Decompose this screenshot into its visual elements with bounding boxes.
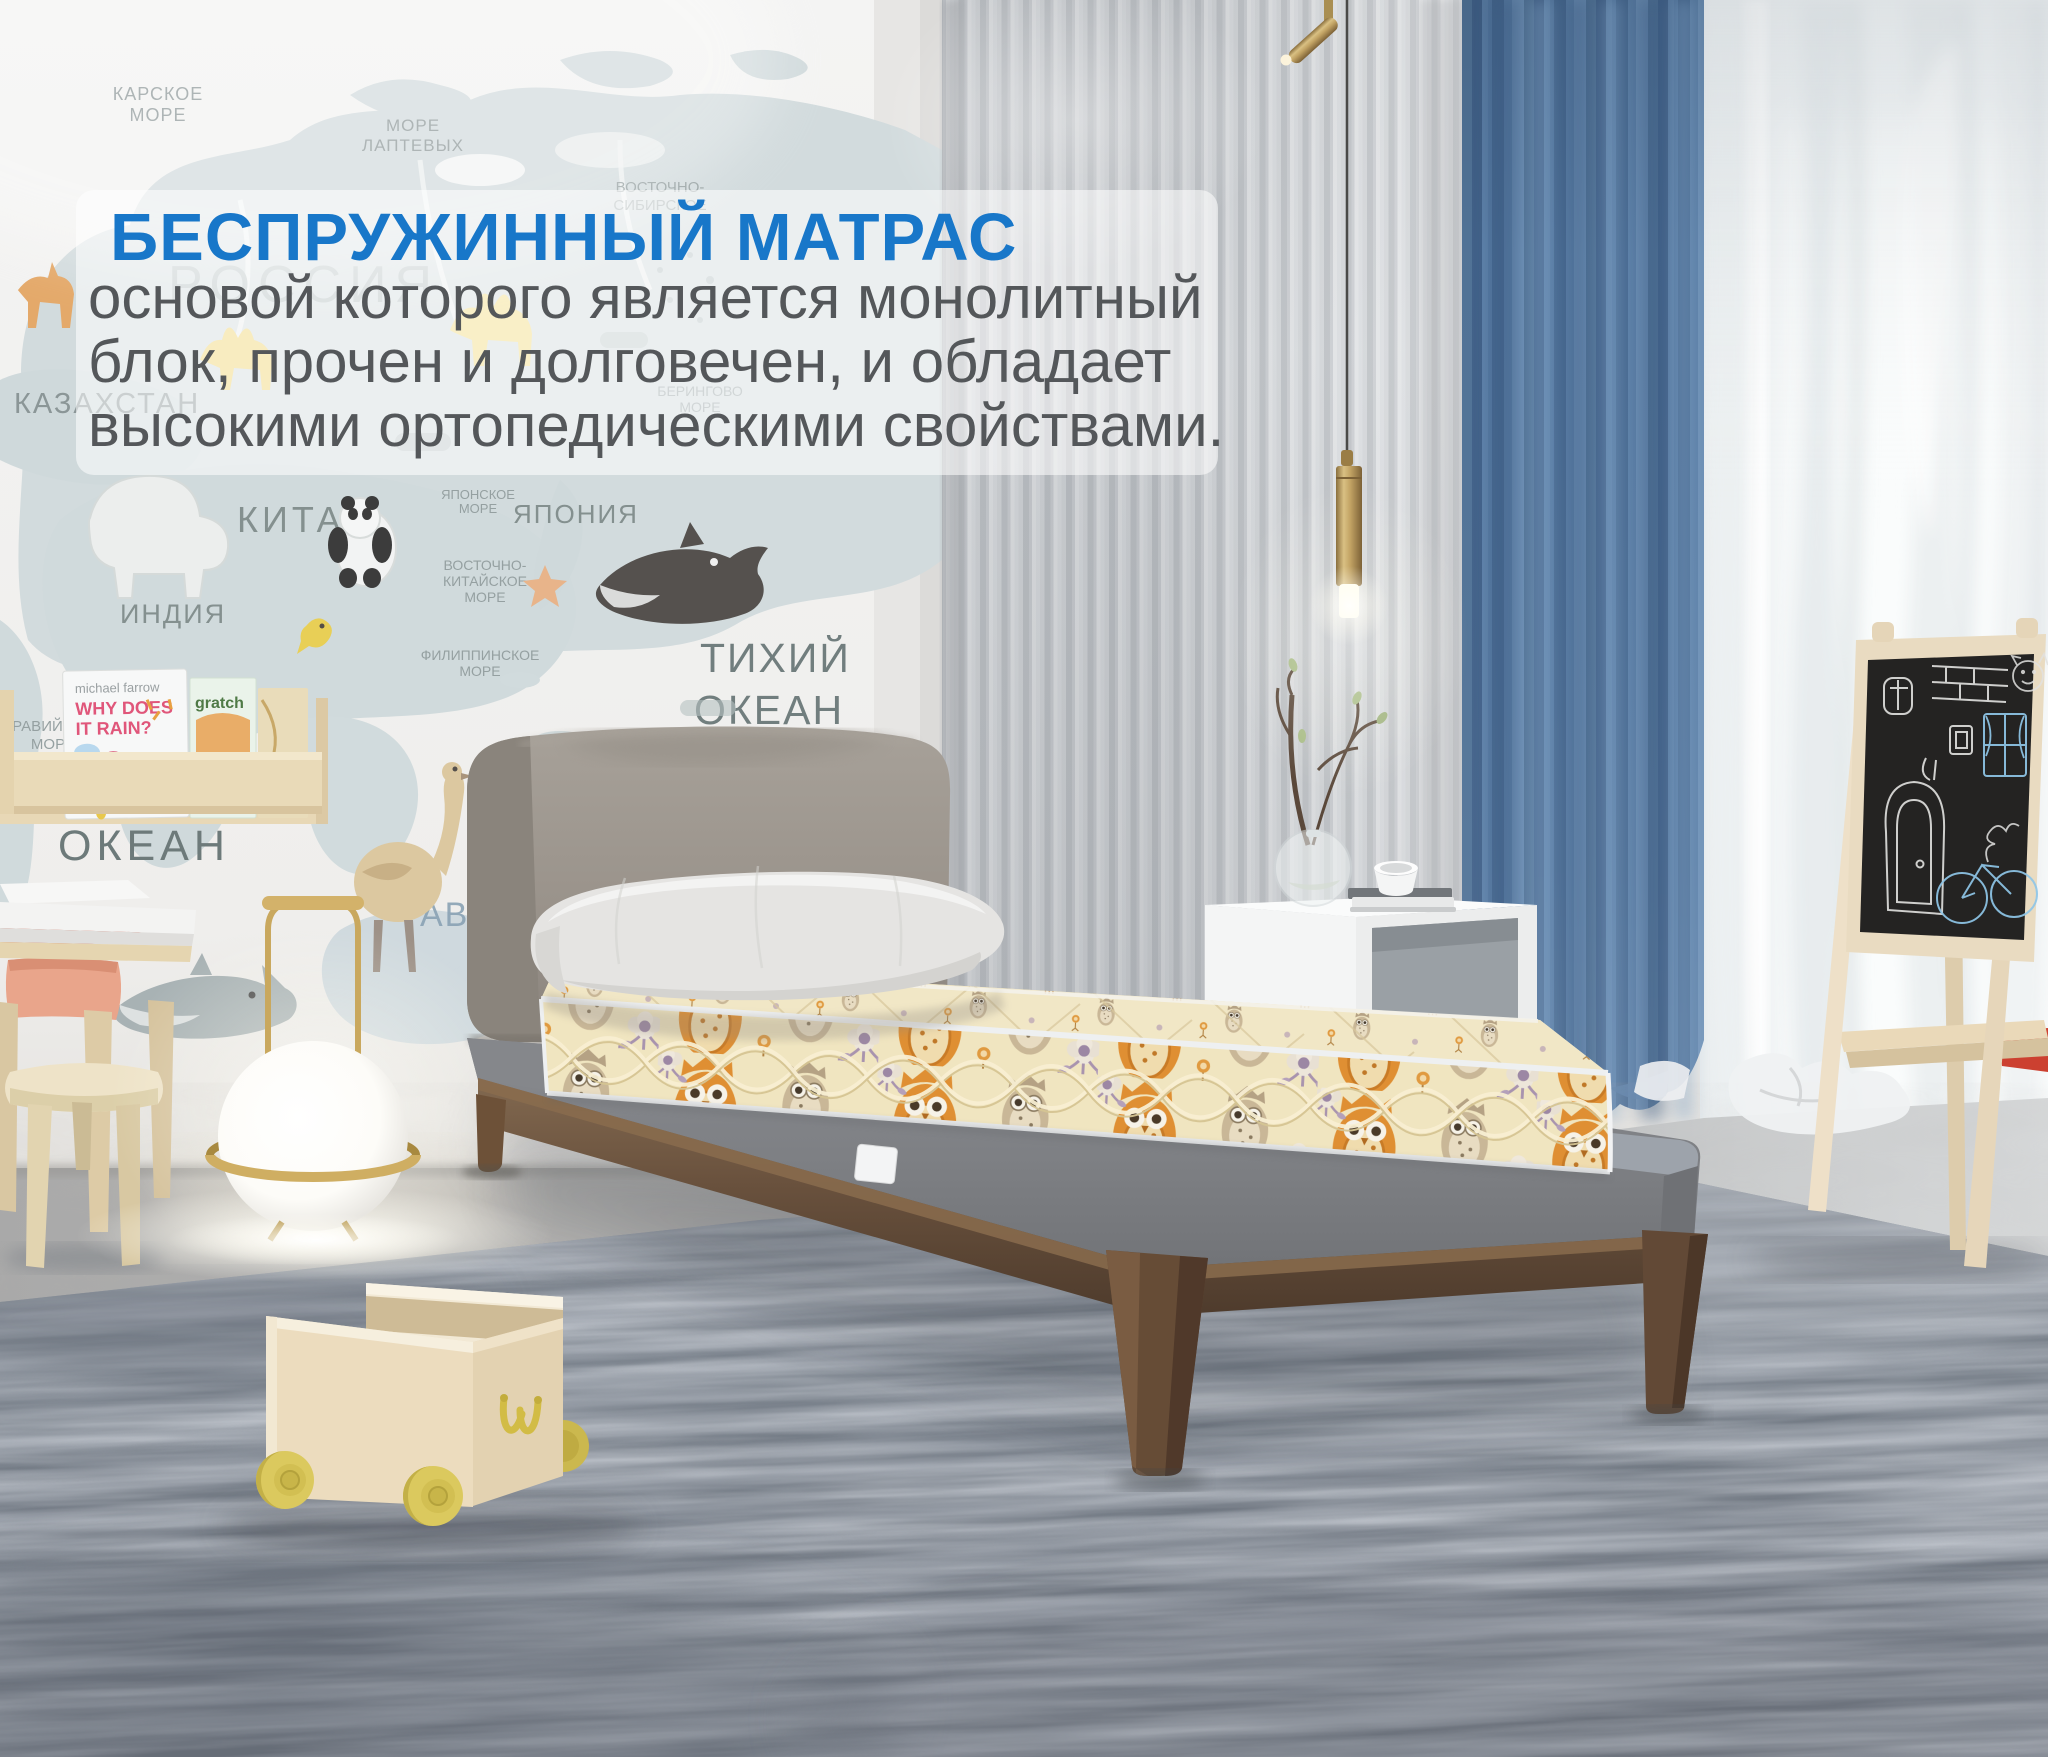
svg-text:ИНДИЯ: ИНДИЯ [120, 599, 226, 629]
svg-text:gratch: gratch [195, 695, 244, 712]
svg-text:МОРЕ: МОРЕ [464, 589, 505, 605]
svg-text:ФИЛИППИНСКОЕ: ФИЛИППИНСКОЕ [421, 647, 540, 663]
svg-text:основой которого является моно: основой которого является монолитный [88, 264, 1203, 331]
svg-text:WHY DOES: WHY DOES [75, 697, 173, 719]
svg-text:ЯПОНСКОЕ: ЯПОНСКОЕ [441, 487, 515, 502]
svg-text:IT RAIN?: IT RAIN? [75, 718, 151, 739]
svg-text:КИТАЙСКОЕ: КИТАЙСКОЕ [443, 572, 527, 589]
svg-text:МОРЕ: МОРЕ [459, 501, 498, 516]
svg-text:ОКЕАН: ОКЕАН [58, 822, 230, 870]
svg-text:высокими ортопедическими свойс: высокими ортопедическими свойствами. [88, 392, 1224, 459]
svg-text:МОРЕ: МОРЕ [459, 663, 500, 679]
svg-text:блок, прочен и долговечен, и о: блок, прочен и долговечен, и обладает [88, 328, 1171, 395]
svg-text:ЯПОНИЯ: ЯПОНИЯ [513, 499, 639, 529]
svg-text:michael farrow: michael farrow [75, 679, 160, 695]
svg-text:ВОСТОЧНО-: ВОСТОЧНО- [444, 557, 527, 573]
svg-text:ТИХИЙ: ТИХИЙ [700, 635, 851, 681]
